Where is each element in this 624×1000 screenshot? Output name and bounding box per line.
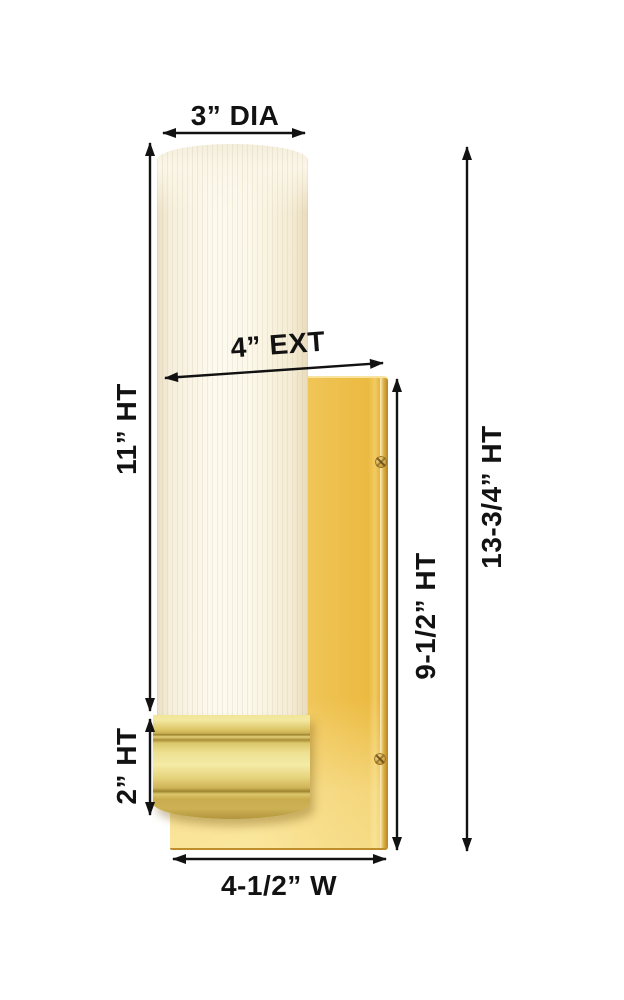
base-collar xyxy=(153,715,310,819)
mounting-screw-bottom-icon xyxy=(374,753,386,765)
dim-label-width: 4-1/2” W xyxy=(221,870,337,902)
dim-label-glass-height: 11” HT xyxy=(111,383,143,475)
dim-label-backplate-height: 9-1/2” HT xyxy=(410,552,442,679)
dim-label-base-height: 2” HT xyxy=(111,727,143,804)
dim-label-diameter: 3” DIA xyxy=(191,100,280,132)
backplate-side-edge xyxy=(380,378,388,848)
mounting-screw-top-icon xyxy=(375,456,387,468)
dim-label-extension: 4” EXT xyxy=(230,326,327,365)
glass-shade-cylinder xyxy=(157,144,308,715)
dim-label-total-height: 13-3/4” HT xyxy=(476,425,508,569)
dimension-diagram: 3” DIA 4” EXT 11” HT 9-1/2” HT 13-3/4” H… xyxy=(0,0,624,1000)
